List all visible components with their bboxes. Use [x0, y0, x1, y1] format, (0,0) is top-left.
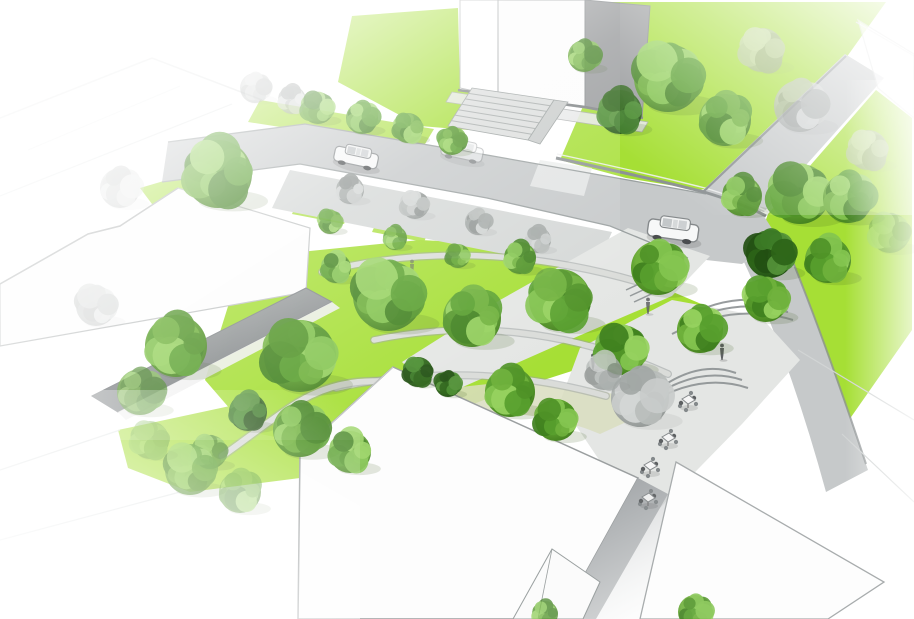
chair — [651, 457, 655, 461]
chair — [684, 408, 688, 412]
chair — [646, 474, 650, 478]
seated-person — [641, 467, 645, 471]
tree-canopy-blob — [640, 378, 675, 413]
tree-canopy-blob — [659, 250, 690, 281]
fade-top-left — [0, 0, 620, 440]
tree-canopy-blob — [699, 314, 728, 343]
chair — [644, 506, 648, 510]
fade-right — [845, 80, 914, 540]
tree-canopy-blob — [640, 245, 659, 264]
site-rendering — [0, 0, 914, 619]
tree-canopy-blob — [624, 335, 649, 360]
seated-person — [659, 439, 663, 443]
seated-person — [679, 401, 683, 405]
chair — [664, 446, 668, 450]
chair — [654, 500, 658, 504]
tree-canopy-blob — [548, 608, 558, 618]
tree-canopy-blob — [767, 286, 791, 310]
tree-canopy-blob — [754, 234, 770, 250]
tree-canopy-blob — [683, 309, 702, 328]
chair — [669, 429, 673, 433]
rendering-canvas — [0, 0, 914, 619]
fade-bottom-left — [0, 390, 360, 619]
chair — [689, 391, 693, 395]
tree-canopy-blob — [810, 238, 831, 259]
tree-canopy-blob — [535, 601, 547, 613]
seated-person — [639, 499, 643, 503]
chair — [649, 489, 653, 493]
chair — [694, 402, 698, 406]
chair — [656, 468, 660, 472]
chair — [674, 440, 678, 444]
tree-canopy-blob — [771, 239, 798, 266]
tree-canopy-blob — [683, 597, 695, 609]
